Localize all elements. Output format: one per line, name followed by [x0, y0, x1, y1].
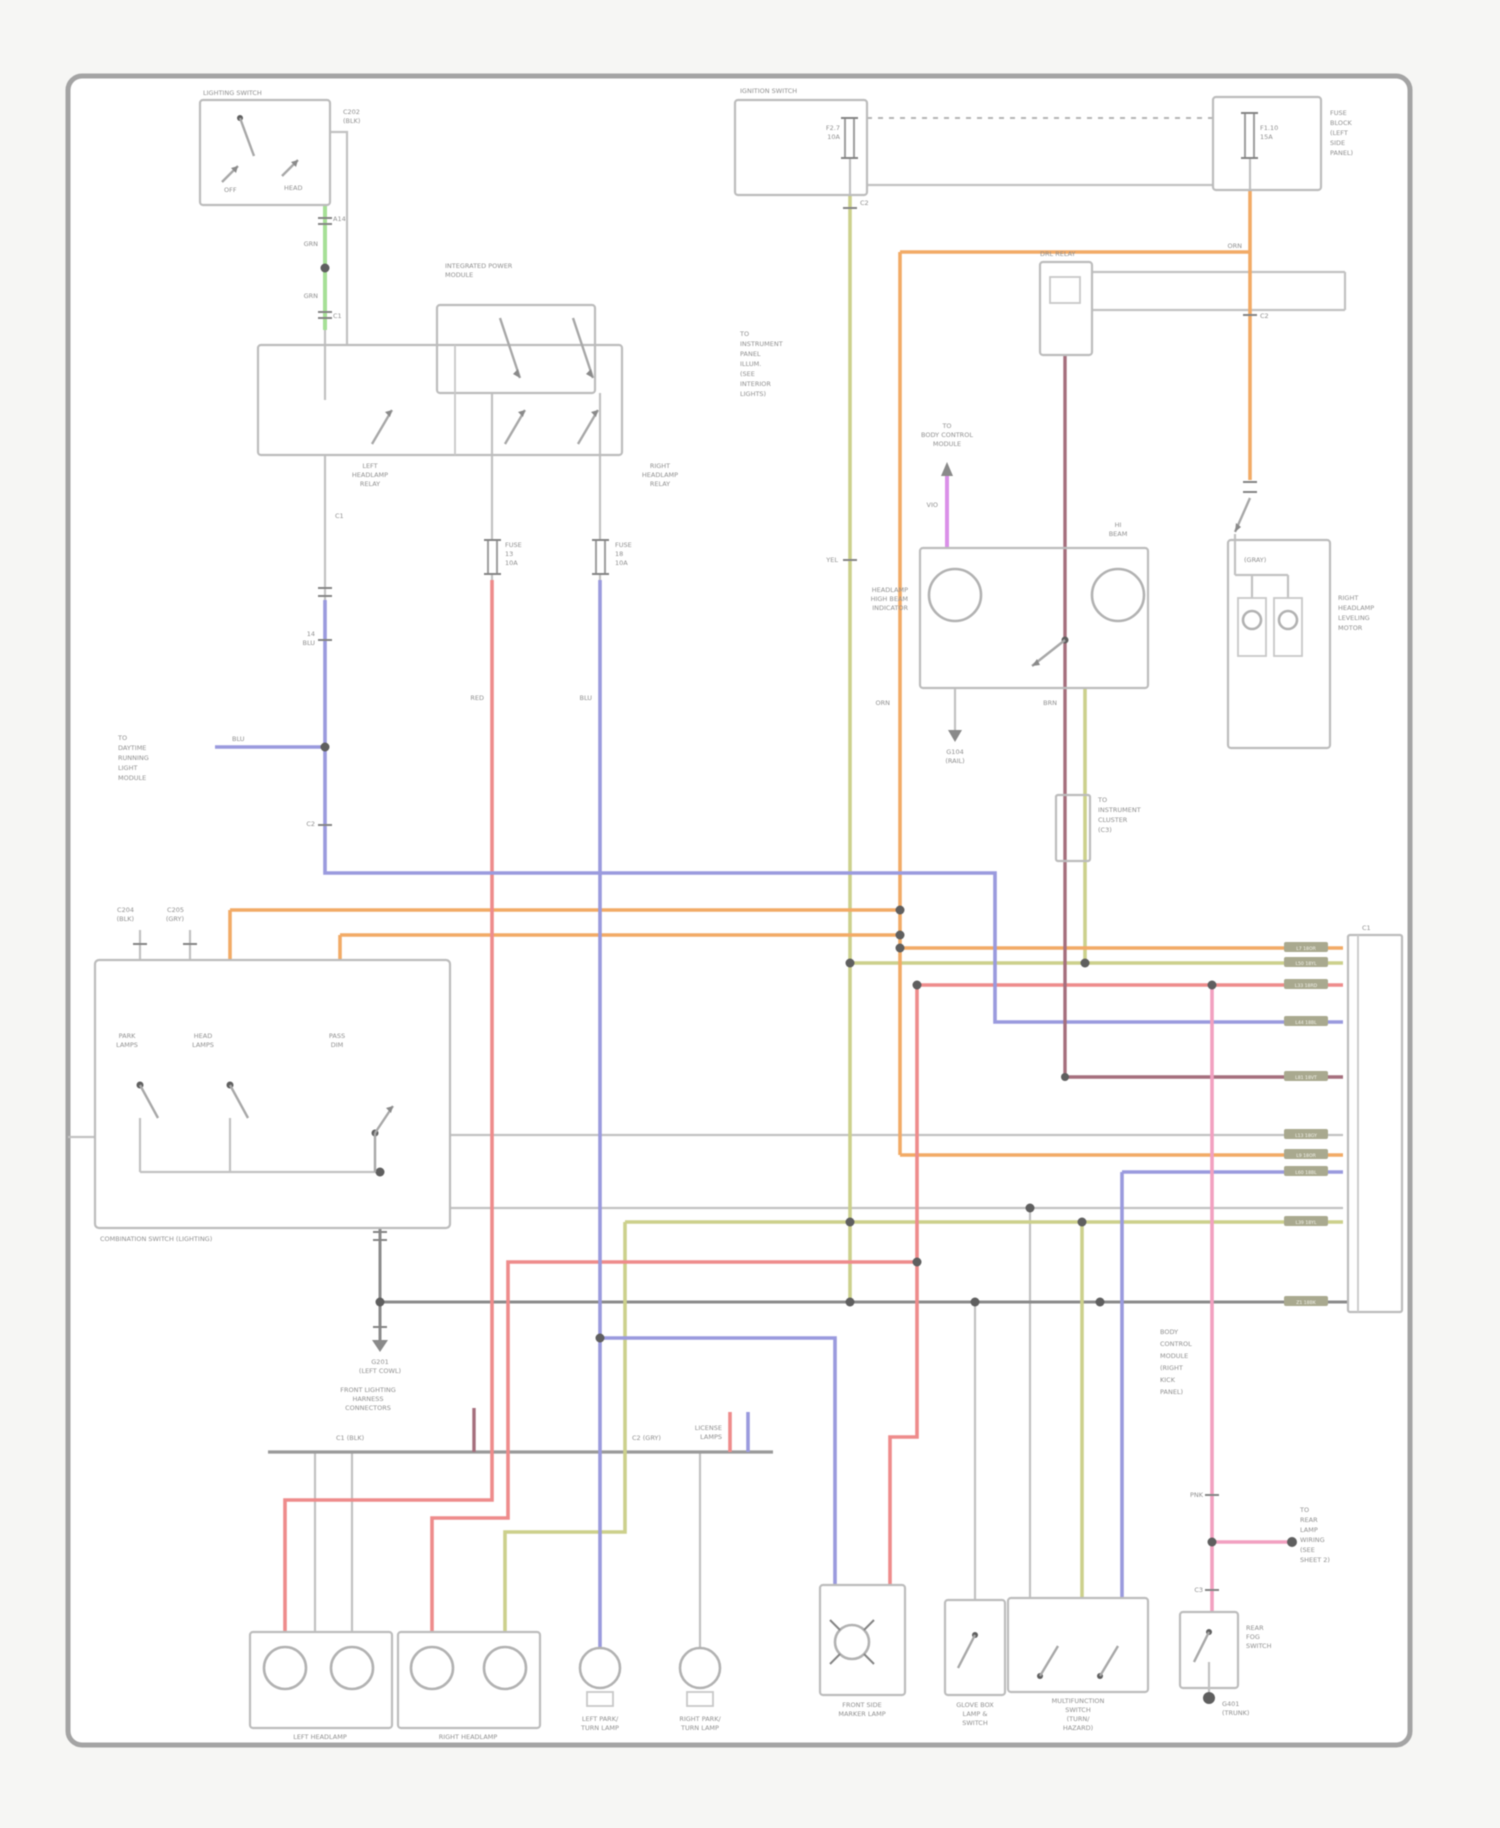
lev-4: MOTOR: [1338, 624, 1363, 632]
vio-to-1: TO: [941, 422, 951, 430]
wire-brn: BRN: [1043, 699, 1057, 707]
scanned-wiring-diagram-page: L7 18OR L50 18YL L33 18RD L44 18BL L81 1…: [0, 0, 1500, 1828]
bcm-1: BODY: [1160, 1328, 1178, 1336]
chip-5: L13 18GY: [1295, 1133, 1317, 1139]
fog-3: SWITCH: [1246, 1642, 1272, 1650]
ls-conn-2: (BLK): [343, 117, 360, 125]
chip-4: L81 18VT: [1295, 1075, 1317, 1081]
bar-3: CONNECTORS: [345, 1404, 391, 1412]
sw2-2: LAMPS: [192, 1041, 214, 1049]
conn-c1b: C1: [335, 512, 344, 520]
wire-orn-2: ORN: [876, 699, 891, 707]
conn-c2b: C2: [860, 199, 869, 207]
comb-c2-1: C205: [167, 906, 184, 914]
epin-1: HI: [1115, 521, 1122, 529]
fb-3: (LEFT: [1330, 129, 1348, 137]
fb-2: BLOCK: [1330, 119, 1353, 127]
rpark-1: RIGHT PARK/: [679, 1715, 721, 1723]
drl-relay-label: DRL RELAY: [1040, 250, 1076, 258]
bcm-5: KICK: [1160, 1376, 1176, 1384]
sw1-2: LAMPS: [116, 1041, 138, 1049]
lighting-switch-label: LIGHTING SWITCH: [203, 89, 262, 97]
cl-3: CLUSTER: [1098, 816, 1128, 824]
cl-4: (C3): [1098, 826, 1112, 834]
relay-right-1: RIGHT: [650, 462, 670, 470]
lh-label: LEFT HEADLAMP: [293, 1733, 347, 1741]
rn-2: REAR: [1300, 1516, 1318, 1524]
il-2: INSTRUMENT: [740, 340, 783, 348]
relay-left-3: RELAY: [360, 480, 380, 488]
lpark-2: TURN LAMP: [580, 1724, 619, 1732]
relay-right-2: HEADLAMP: [642, 471, 678, 479]
rn-6: SHEET 2): [1300, 1556, 1330, 1564]
epin-2: BEAM: [1109, 530, 1128, 538]
bar-c2: C2 (GRY): [632, 1434, 661, 1442]
sw3-2: DIM: [331, 1041, 344, 1049]
fb-5: PANEL): [1330, 149, 1353, 157]
conn-c2c: C2: [1260, 312, 1269, 320]
g401-1: G401: [1222, 1700, 1239, 1708]
marker-1: FRONT SIDE: [842, 1701, 881, 1709]
wire-pnk: PNK: [1190, 1491, 1204, 1499]
g104-1: G104: [946, 748, 963, 756]
drl-1: TO: [117, 734, 127, 742]
multi-1: MULTIFUNCTION: [1052, 1697, 1105, 1705]
lic-1: LICENSE: [695, 1424, 722, 1432]
wire-grn-2: GRN: [304, 292, 319, 300]
chip-0: L7 18OR: [1296, 946, 1316, 952]
bcm-4: (RIGHT: [1160, 1364, 1183, 1372]
rn-5: (SEE: [1300, 1546, 1315, 1554]
fuse18-1: FUSE: [615, 541, 632, 549]
wire-blu-2: BLU: [579, 694, 592, 702]
glove-2: LAMP &: [963, 1710, 988, 1718]
lev-1: RIGHT: [1338, 594, 1358, 602]
lpark-1: LEFT PARK/: [582, 1715, 619, 1723]
drl-2: DAYTIME: [118, 744, 146, 752]
fb-4: SIDE: [1330, 139, 1345, 147]
strip-c1: C1: [1362, 924, 1371, 932]
il-4: ILLUM.: [740, 360, 761, 368]
wire-vio: VIO: [927, 501, 938, 509]
drl-5: MODULE: [118, 774, 146, 782]
g201-2: (LEFT COWL): [359, 1367, 401, 1375]
g104-2: (RAIL): [945, 757, 964, 765]
rn-4: WIRING: [1300, 1536, 1325, 1544]
il-1: TO: [739, 330, 749, 338]
vio-to-2: BODY CONTROL: [921, 431, 973, 439]
marker-2: MARKER LAMP: [838, 1710, 885, 1718]
drl-4: LIGHT: [118, 764, 137, 772]
chip-2: L33 18RD: [1295, 983, 1318, 989]
pin-a14: A14: [333, 215, 346, 223]
il-3: PANEL: [740, 350, 761, 358]
conn-c3: C3: [1194, 1586, 1203, 1594]
comb-c1-1: C204: [117, 906, 134, 914]
ign-fuse-2: 10A: [827, 133, 840, 141]
wire-blu: BLU: [232, 735, 245, 743]
il-5: (SEE: [740, 370, 755, 378]
hb-3: INDICATOR: [872, 604, 908, 612]
conn-c2a: C2: [306, 820, 315, 828]
wire-orn-1: ORN: [1228, 242, 1243, 250]
sw1-1: PARK: [119, 1032, 136, 1040]
wire-yel-1: YEL: [825, 556, 838, 564]
fog-2: FOG: [1246, 1633, 1260, 1641]
relay-left-1: LEFT: [362, 462, 377, 470]
bar-2: HARNESS: [352, 1395, 383, 1403]
sw3-1: PASS: [329, 1032, 345, 1040]
comb-c1-2: (BLK): [117, 915, 134, 923]
comb-c2-2: (GRY): [166, 915, 184, 923]
multi-3: (TURN/: [1067, 1715, 1091, 1723]
bar-1: FRONT LIGHTING: [340, 1386, 396, 1394]
ipm-2: MODULE: [445, 271, 473, 279]
pos-head: HEAD: [284, 184, 302, 192]
rpark-2: TURN LAMP: [680, 1724, 719, 1732]
ls-conn-1: C202: [343, 108, 360, 116]
rn-1: TO: [1299, 1506, 1309, 1514]
wire-red: RED: [470, 694, 484, 702]
conn-c1a: C1: [333, 312, 342, 320]
fog-1: REAR: [1246, 1624, 1264, 1632]
chip-6: L9 18OR: [1296, 1153, 1316, 1159]
bcm-2: CONTROL: [1160, 1340, 1192, 1348]
fb-1: FUSE: [1330, 109, 1347, 117]
cl-2: INSTRUMENT: [1098, 806, 1141, 814]
pos-off: OFF: [224, 186, 237, 194]
wire-14-2: BLU: [302, 639, 315, 647]
glove-1: GLOVE BOX: [956, 1701, 994, 1709]
chip-1: L50 18YL: [1295, 961, 1317, 967]
fuse13-1: FUSE: [505, 541, 522, 549]
lev-2: HEADLAMP: [1338, 604, 1374, 612]
bcm-3: MODULE: [1160, 1352, 1188, 1360]
chip-7: L60 18BL: [1295, 1170, 1317, 1176]
drl-3: RUNNING: [118, 754, 149, 762]
multi-4: HAZARD): [1063, 1724, 1093, 1732]
ign-fuse-1: F2.7: [826, 124, 840, 132]
ign-label: IGNITION SWITCH: [740, 87, 797, 95]
bcm-6: PANEL): [1160, 1388, 1183, 1396]
ground-dot-icon: [1203, 1692, 1215, 1704]
sw2-1: HEAD: [194, 1032, 212, 1040]
chip-8: L39 18YL: [1295, 1220, 1317, 1226]
bar-c1: C1 (BLK): [336, 1434, 364, 1442]
wire-grn-1: GRN: [304, 240, 319, 248]
g401-2: (TRUNK): [1222, 1709, 1249, 1717]
fuse13-2: 13: [505, 550, 513, 558]
jfuse-2: 15A: [1260, 133, 1273, 141]
glove-3: SWITCH: [962, 1719, 988, 1727]
chip-3: L44 18BL: [1295, 1020, 1317, 1026]
d-color: (GRAY): [1244, 556, 1266, 564]
g201-1: G201: [371, 1358, 388, 1366]
relay-left-2: HEADLAMP: [352, 471, 388, 479]
cl-1: TO: [1097, 796, 1107, 804]
hb-2: HIGH BEAM: [871, 595, 908, 603]
vio-to-3: MODULE: [933, 440, 961, 448]
chip-9: Z1 18BK: [1296, 1300, 1317, 1306]
relay-right-3: RELAY: [650, 480, 670, 488]
comb-label: COMBINATION SWITCH (LIGHTING): [100, 1235, 212, 1243]
ipm-1: INTEGRATED POWER: [445, 262, 513, 270]
il-6: INTERIOR: [740, 380, 771, 388]
hb-1: HEADLAMP: [872, 586, 908, 594]
rn-3: LAMP: [1300, 1526, 1318, 1534]
il-7: LIGHTS): [740, 390, 766, 398]
jfuse-1: F1.10: [1260, 124, 1278, 132]
lic-2: LAMPS: [700, 1433, 722, 1441]
diagram-canvas: L7 18OR L50 18YL L33 18RD L44 18BL L81 1…: [0, 0, 1500, 1828]
multi-2: SWITCH: [1065, 1706, 1091, 1714]
lev-3: LEVELING: [1338, 614, 1370, 622]
fuse18-3: 10A: [615, 559, 628, 567]
fuse18-2: 18: [615, 550, 623, 558]
fuse13-3: 10A: [505, 559, 518, 567]
rh-label: RIGHT HEADLAMP: [439, 1733, 498, 1741]
wire-14-1: 14: [307, 630, 315, 638]
